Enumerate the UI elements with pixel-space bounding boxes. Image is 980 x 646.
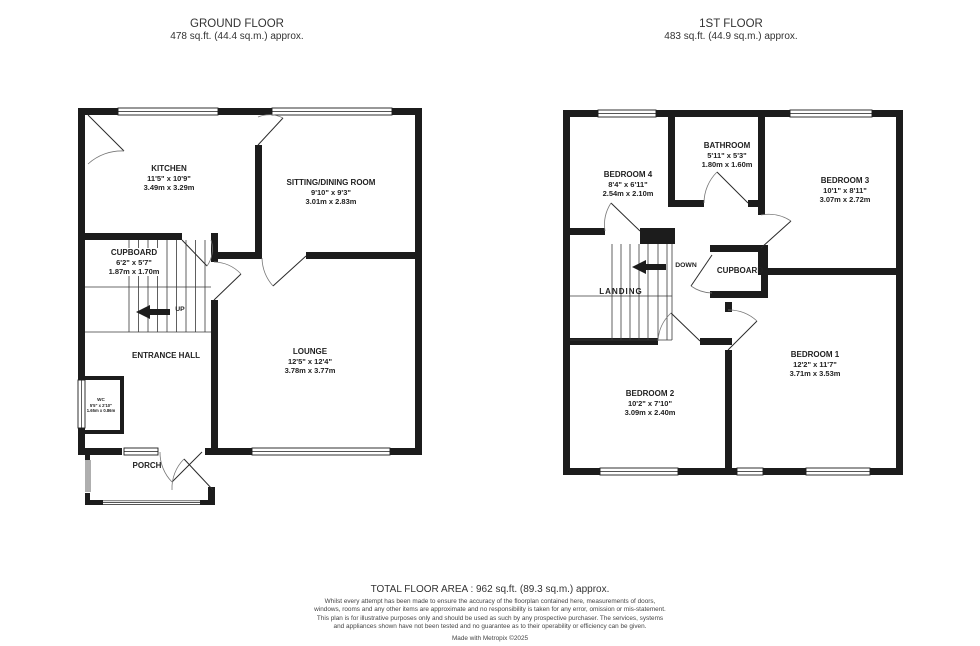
room-dims-imperial: 5'5" x 2'10"	[87, 403, 115, 408]
room-dims-metric: 1.80m x 1.60m	[702, 160, 753, 169]
room-name: ENTRANCE HALL	[132, 351, 200, 361]
room-name: PORCH	[133, 461, 162, 471]
room-name: CUPBOARD	[109, 248, 160, 258]
floorplan-graphic	[0, 0, 980, 646]
room-name: SITTING/DINING ROOM	[287, 178, 376, 188]
room-dims-metric: 3.78m x 3.77m	[285, 366, 336, 375]
ground-floor-area: 478 sq.ft. (44.4 sq.m.) approx.	[170, 31, 303, 43]
room-dims-imperial: 6'2" x 5'7"	[109, 258, 160, 267]
room-dims-imperial: 12'2" x 11'7"	[790, 360, 841, 369]
room-name: CUPBOARD	[717, 266, 763, 276]
room-name: LOUNGE	[285, 347, 336, 357]
room-label-bedroom-1: BEDROOM 1 12'2" x 11'7" 3.71m x 3.53m	[790, 350, 841, 378]
room-dims-metric: 1.87m x 1.70m	[109, 267, 160, 276]
stairs-down-label: DOWN	[675, 262, 697, 270]
ground-floor-title: GROUND FLOOR	[190, 18, 284, 32]
disclaimer-text: Whilst every attempt has been made to en…	[312, 598, 668, 631]
room-label-entrance-hall: ENTRANCE HALL	[132, 351, 200, 361]
room-dims-imperial: 12'5" x 12'4"	[285, 357, 336, 366]
room-name: BEDROOM 4	[603, 170, 654, 180]
room-name: KITCHEN	[144, 164, 195, 174]
room-dims-metric: 3.71m x 3.53m	[790, 369, 841, 378]
room-label-porch: PORCH	[133, 461, 162, 471]
room-dims-imperial: 8'4" x 6'11"	[603, 180, 654, 189]
room-label-bedroom-3: BEDROOM 3 10'1" x 8'11" 3.07m x 2.72m	[820, 176, 871, 204]
room-name: LANDING	[599, 287, 642, 297]
room-label-landing: LANDING	[599, 287, 642, 297]
room-label-bedroom-4: BEDROOM 4 8'4" x 6'11" 2.54m x 2.10m	[603, 170, 654, 198]
room-label-bathroom: BATHROOM 5'11" x 5'3" 1.80m x 1.60m	[702, 141, 753, 169]
room-name: BEDROOM 2	[625, 389, 676, 399]
first-floor-title: 1ST FLOOR	[699, 18, 763, 32]
floorplan-page: GROUND FLOOR 478 sq.ft. (44.4 sq.m.) app…	[0, 0, 980, 646]
stairs-up-label: UP	[175, 306, 184, 314]
room-dims-imperial: 9'10" x 9'3"	[287, 188, 376, 197]
credit-text: Made with Metropix ©2025	[452, 635, 528, 643]
room-dims-imperial: 5'11" x 5'3"	[702, 151, 753, 160]
room-label-kitchen: KITCHEN 11'5" x 10'9" 3.49m x 3.29m	[144, 164, 195, 192]
room-dims-imperial: 10'2" x 7'10"	[625, 399, 676, 408]
room-dims-imperial: 10'1" x 8'11"	[820, 186, 871, 195]
room-dims-metric: 3.49m x 3.29m	[144, 183, 195, 192]
total-floor-area: TOTAL FLOOR AREA : 962 sq.ft. (89.3 sq.m…	[371, 584, 610, 596]
window-icon	[78, 108, 392, 504]
room-label-cupboard-ground: CUPBOARD 6'2" x 5'7" 1.87m x 1.70m	[107, 248, 162, 276]
room-label-bedroom-2: BEDROOM 2 10'2" x 7'10" 3.09m x 2.40m	[625, 389, 676, 417]
room-name: BEDROOM 1	[790, 350, 841, 360]
ground-floor-plan	[78, 108, 422, 505]
room-dims-metric: 2.54m x 2.10m	[603, 189, 654, 198]
up-arrow-icon	[136, 305, 170, 319]
room-dims-metric: 3.09m x 2.40m	[625, 408, 676, 417]
down-arrow-icon	[632, 260, 666, 274]
room-label-cupboard-first: CUPBOARD	[717, 266, 763, 276]
room-dims-metric: 3.07m x 2.72m	[820, 195, 871, 204]
room-label-lounge: LOUNGE 12'5" x 12'4" 3.78m x 3.77m	[285, 347, 336, 375]
room-dims-metric: 1.65m x 0.86m	[87, 408, 115, 413]
first-floor-area: 483 sq.ft. (44.9 sq.m.) approx.	[664, 31, 797, 43]
room-name: BATHROOM	[702, 141, 753, 151]
room-label-wc: WC 5'5" x 2'10" 1.65m x 0.86m	[87, 397, 115, 413]
room-dims-imperial: 11'5" x 10'9"	[144, 174, 195, 183]
room-dims-metric: 3.01m x 2.83m	[287, 197, 376, 206]
room-name: BEDROOM 3	[820, 176, 871, 186]
room-label-sitting-dining: SITTING/DINING ROOM 9'10" x 9'3" 3.01m x…	[287, 178, 376, 206]
